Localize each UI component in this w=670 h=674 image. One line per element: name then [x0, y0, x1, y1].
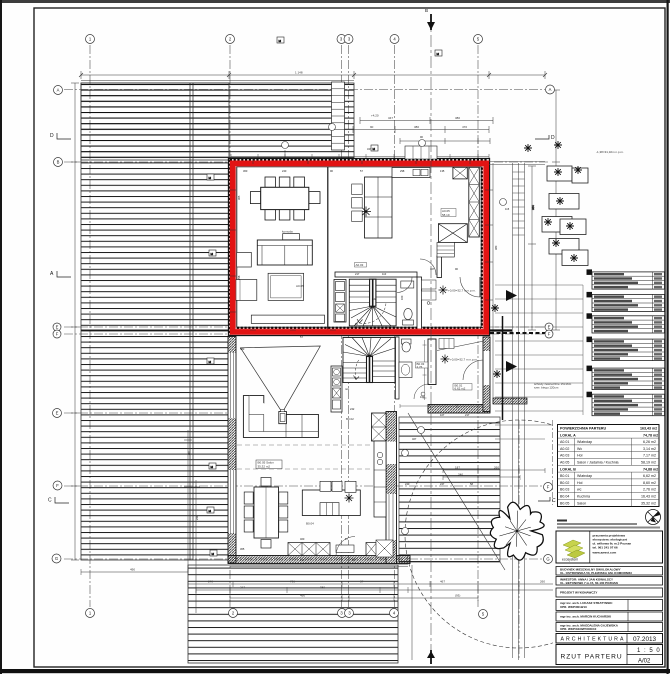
- svg-text:110: 110: [382, 272, 387, 276]
- svg-text:242: 242: [350, 407, 355, 411]
- svg-text:260: 260: [494, 466, 499, 470]
- svg-text:+0,00=32,7 m n.p.m.: +0,00=32,7 m n.p.m.: [448, 289, 476, 293]
- svg-text:360: 360: [243, 169, 248, 173]
- svg-text:min: min: [345, 387, 350, 391]
- svg-text:A0.05: A0.05: [296, 284, 304, 288]
- svg-text:UPR. WKP/0433/POOK/10: UPR. WKP/0433/POOK/10: [560, 627, 597, 631]
- svg-text:467: 467: [412, 437, 417, 441]
- svg-text:8,60 m2: 8,60 m2: [643, 481, 656, 485]
- svg-text:347: 347: [367, 147, 372, 151]
- svg-text:90: 90: [370, 125, 374, 129]
- svg-text:242: 242: [372, 297, 377, 301]
- svg-text:E: E: [548, 325, 551, 330]
- svg-text:736: 736: [290, 580, 295, 584]
- svg-text:6,26 m2: 6,26 m2: [643, 440, 656, 444]
- svg-text:D: D: [50, 133, 54, 139]
- svg-text:D: D: [551, 135, 555, 141]
- svg-text:57: 57: [360, 580, 364, 584]
- svg-text:B0.04: B0.04: [306, 522, 314, 526]
- svg-text:470: 470: [462, 125, 467, 129]
- svg-text:240: 240: [458, 473, 463, 477]
- svg-text:A0.03: A0.03: [356, 263, 364, 267]
- svg-text:163,43 m2: 163,43 m2: [640, 427, 657, 431]
- svg-text:F: F: [56, 332, 59, 337]
- svg-text:16,43 m2: 16,43 m2: [641, 495, 656, 499]
- svg-text:C: C: [48, 498, 52, 504]
- svg-text:467: 467: [440, 580, 445, 584]
- svg-text:160: 160: [400, 295, 404, 300]
- svg-text:490: 490: [130, 568, 135, 572]
- svg-text:298: 298: [400, 169, 405, 173]
- svg-text:217: 217: [465, 413, 470, 417]
- svg-text:2,76: 2,76: [417, 365, 423, 369]
- svg-text:F: F: [547, 485, 550, 490]
- svg-text:A0.05: A0.05: [560, 461, 569, 465]
- svg-text:www.awest.com: www.awest.com: [592, 551, 617, 555]
- svg-text:58,19 m2: 58,19 m2: [641, 461, 656, 465]
- svg-text:6,62 m2: 6,62 m2: [643, 474, 656, 478]
- svg-text:E: E: [56, 325, 59, 330]
- svg-text:107: 107: [440, 413, 445, 417]
- svg-text:35,32 m2: 35,32 m2: [641, 501, 656, 505]
- svg-text:G: G: [546, 557, 549, 562]
- svg-text:B0.05: B0.05: [560, 501, 569, 505]
- svg-text:Wiatrolap: Wiatrolap: [577, 440, 592, 444]
- svg-text:247: 247: [440, 482, 445, 486]
- svg-text:35,32 m2: 35,32 m2: [258, 464, 271, 468]
- svg-text:(93): (93): [455, 594, 460, 598]
- svg-text:mgr inz. arch. MARCIN KUCHARSK: mgr inz. arch. MARCIN KUCHARSKI: [560, 615, 611, 619]
- svg-text:UL. BETONOWA 7 m.15, 60-100 PO: UL. BETONOWA 7 m.15, 60-100 POZNAN: [560, 581, 618, 585]
- svg-text:komoda: komoda: [282, 230, 293, 234]
- svg-text:380: 380: [494, 245, 498, 250]
- svg-text:wc: wc: [577, 488, 582, 492]
- svg-text:B0.02: B0.02: [560, 481, 569, 485]
- svg-text:247: 247: [240, 586, 245, 590]
- svg-text:07.2013: 07.2013: [633, 636, 657, 643]
- svg-text:A0.03: A0.03: [560, 454, 569, 458]
- svg-text:240: 240: [282, 169, 287, 173]
- svg-text:298: 298: [237, 275, 241, 280]
- svg-text:347: 347: [388, 116, 393, 120]
- svg-text:Hol: Hol: [577, 481, 583, 485]
- svg-text:135: 135: [440, 169, 445, 173]
- svg-text:G: G: [55, 556, 58, 561]
- svg-text:UPR. WKP/0019/13: UPR. WKP/0019/13: [560, 605, 587, 609]
- svg-text:C: C: [552, 498, 556, 504]
- svg-text:160: 160: [420, 395, 425, 399]
- svg-text:F: F: [548, 332, 551, 337]
- svg-text:217: 217: [355, 272, 360, 276]
- svg-text:380: 380: [531, 205, 535, 210]
- svg-text:UL. OSTROWSKA 50, PLEWISKA GM.: UL. OSTROWSKA 50, PLEWISKA GM. KOMORNIKI: [560, 571, 632, 575]
- svg-text:A0.01: A0.01: [560, 440, 569, 444]
- svg-text:2,76 m2: 2,76 m2: [643, 488, 656, 492]
- svg-text:365: 365: [240, 547, 245, 551]
- svg-text:B0.04: B0.04: [560, 495, 569, 499]
- svg-text:Wiatrolap: Wiatrolap: [577, 474, 592, 478]
- svg-text:74,88 m2: 74,88 m2: [643, 467, 658, 471]
- svg-text:B: B: [425, 8, 428, 13]
- svg-text:+0,00=32,7 m n.p.m.: +0,00=32,7 m n.p.m.: [450, 358, 478, 362]
- svg-text:Wc: Wc: [577, 447, 582, 451]
- svg-text:490: 490: [300, 594, 305, 598]
- svg-text:380: 380: [414, 125, 419, 129]
- svg-text:E: E: [56, 411, 59, 416]
- svg-text:380: 380: [455, 116, 460, 120]
- svg-text:460: 460: [300, 537, 305, 541]
- svg-text:LOKAL A: LOKAL A: [560, 433, 576, 437]
- svg-text:583: 583: [240, 347, 245, 351]
- svg-text:B0.02: B0.02: [346, 417, 354, 421]
- svg-text:A0.02: A0.02: [560, 447, 569, 451]
- svg-text:RZUT PARTERU: RZUT PARTERU: [561, 654, 623, 661]
- svg-text:58,19: 58,19: [442, 213, 450, 217]
- svg-text:Salon / Jadalnia / Kuchnia: Salon / Jadalnia / Kuchnia: [577, 461, 619, 465]
- svg-text:3,14 m2: 3,14 m2: [643, 447, 656, 451]
- svg-text:ecosystem: ecosystem: [562, 558, 578, 562]
- svg-text:217: 217: [300, 558, 305, 562]
- svg-text:115: 115: [505, 207, 510, 211]
- svg-text:ARCHITEKTURA: ARCHITEKTURA: [561, 637, 626, 643]
- svg-text:A: A: [57, 88, 60, 93]
- svg-text:Hol: Hol: [577, 454, 583, 458]
- svg-text:A/02: A/02: [638, 659, 651, 665]
- svg-text:1 148: 1 148: [295, 71, 303, 75]
- svg-text:PROJEKT WYKONAWCZY: PROJEKT WYKONAWCZY: [560, 591, 597, 595]
- svg-text:240: 240: [405, 482, 410, 486]
- svg-text:260: 260: [540, 580, 545, 584]
- svg-text:B0.01: B0.01: [560, 474, 569, 478]
- svg-text:LOKAL B: LOKAL B: [560, 467, 576, 471]
- svg-text:B0.03: B0.03: [560, 488, 569, 492]
- svg-text:tel. 061 241 07 66: tel. 061 241 07 66: [593, 546, 618, 550]
- svg-text:240: 240: [195, 515, 199, 520]
- svg-text:240: 240: [208, 580, 213, 584]
- svg-text:467: 467: [187, 450, 191, 455]
- svg-text:F: F: [56, 483, 59, 488]
- svg-text:187: 187: [455, 466, 460, 470]
- svg-text:7,17 m2: 7,17 m2: [643, 454, 656, 458]
- svg-text:B: B: [57, 160, 60, 165]
- svg-text:Salon: Salon: [577, 501, 586, 505]
- svg-text:+4,20: +4,20: [371, 114, 379, 118]
- svg-text:POWIERZCHNIA PARTERU: POWIERZCHNIA PARTERU: [560, 427, 607, 431]
- svg-text:365: 365: [237, 195, 241, 200]
- svg-text:6,62 m2: 6,62 m2: [455, 387, 466, 391]
- svg-text:szer. biegu 120cm: szer. biegu 120cm: [534, 386, 559, 390]
- svg-text:74,78 m2: 74,78 m2: [643, 433, 658, 437]
- svg-text:A: A: [549, 87, 552, 92]
- svg-text:980: 980: [320, 586, 325, 590]
- svg-text:1 : 5 0: 1 : 5 0: [637, 648, 661, 654]
- svg-text:-1,38=31,32m n.p.m.: -1,38=31,32m n.p.m.: [596, 150, 624, 154]
- svg-text:Kuchnia: Kuchnia: [577, 495, 590, 499]
